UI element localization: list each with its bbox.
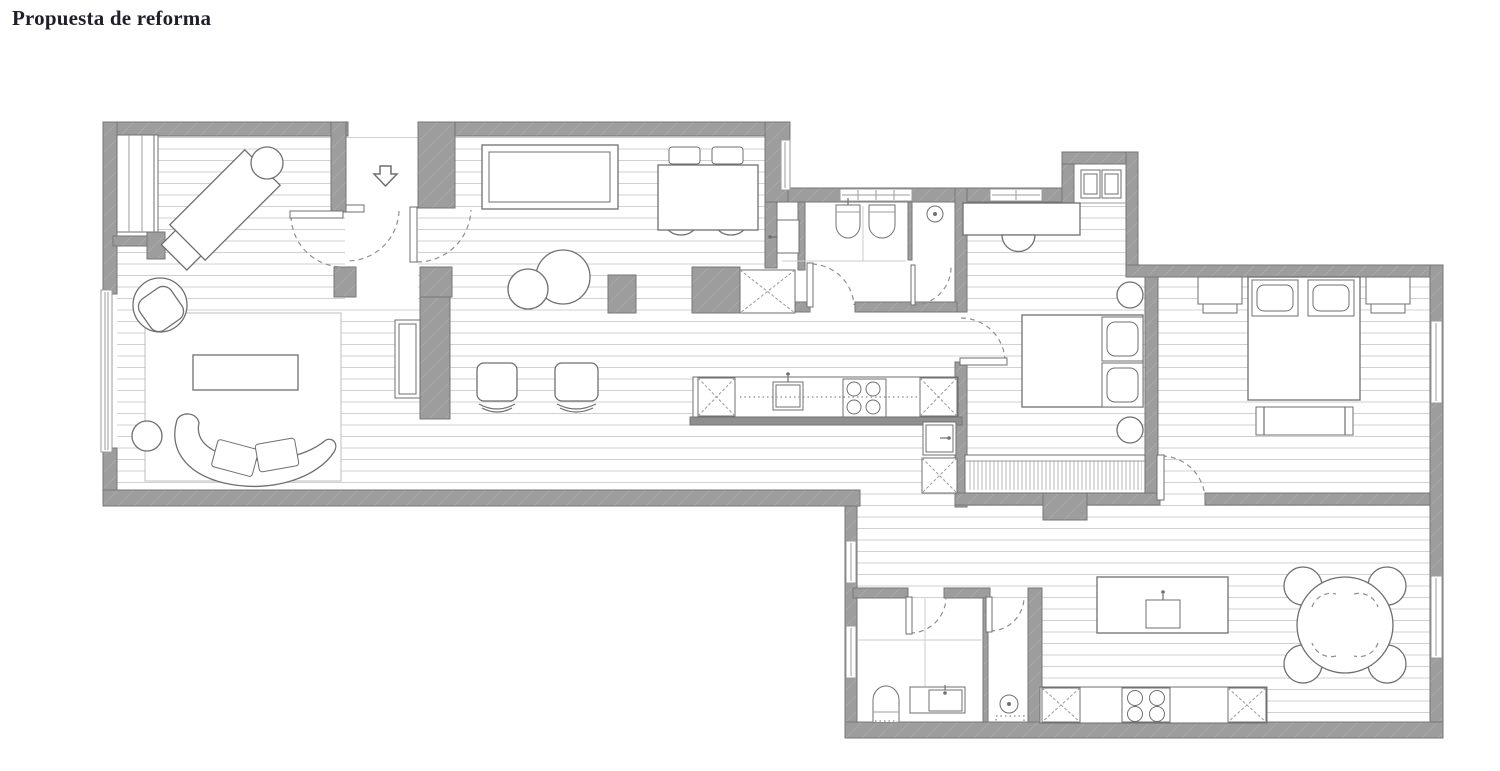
- bidet: [869, 205, 895, 238]
- tv-unit: [395, 320, 420, 398]
- door-leaf: [346, 205, 364, 212]
- washbasin: [910, 685, 965, 713]
- shower-head: [927, 206, 943, 222]
- window-step: [781, 140, 790, 190]
- round-table: [1297, 577, 1393, 673]
- window-living-left: [101, 290, 112, 452]
- double-bed: [1248, 277, 1360, 400]
- coffee-table: [193, 355, 298, 390]
- door-leaf: [410, 207, 417, 262]
- bedside-table: [1117, 282, 1143, 308]
- round-table-set: [1284, 567, 1406, 683]
- study-wardrobe: [117, 135, 158, 232]
- floor-plan: [0, 0, 1500, 771]
- sideboard: [482, 145, 618, 209]
- desk: [963, 203, 1080, 235]
- floor-plan-page: Propuesta de reforma: [0, 0, 1500, 771]
- door-leaf: [1157, 455, 1164, 500]
- window-wing-left-1: [846, 541, 856, 583]
- nightstand: [1198, 277, 1242, 313]
- shaft-x: [740, 270, 795, 313]
- kitchen: [693, 372, 958, 417]
- window-bedroom-right: [1431, 321, 1442, 403]
- skylight-niche: [1074, 170, 1126, 203]
- pillow: [1107, 322, 1138, 356]
- shower-drain: [1000, 695, 1018, 713]
- hob: [1122, 688, 1170, 722]
- door-leaf: [290, 211, 343, 218]
- door-leaf: [906, 597, 912, 634]
- double-bed: [1022, 315, 1143, 407]
- door-leaf: [986, 597, 992, 632]
- bed-bench: [1256, 407, 1353, 435]
- dining-table: [658, 165, 758, 230]
- kitchen-island: [1097, 577, 1228, 633]
- door-leaf: [807, 263, 813, 307]
- door-leaf: [960, 358, 1007, 365]
- tall-unit-x: [1042, 688, 1080, 722]
- bottom-counter: [1040, 687, 1267, 723]
- dining-chair: [712, 147, 743, 164]
- hob: [843, 379, 886, 417]
- window-bath-top-1: [840, 189, 912, 201]
- window-wing-left-2: [846, 626, 856, 678]
- pillow: [1107, 368, 1138, 402]
- nightstand: [1366, 277, 1410, 313]
- dining-chair: [669, 147, 700, 164]
- tall-unit-x: [1228, 688, 1266, 722]
- shaft-x: [922, 458, 957, 493]
- pillow: [1257, 285, 1293, 311]
- window-top-2: [990, 189, 1042, 201]
- fireplace-block: [608, 275, 636, 313]
- window-dining-right: [1431, 576, 1442, 658]
- washing-machine: [923, 422, 956, 455]
- study-chair: [251, 147, 283, 179]
- bedside-table: [1117, 417, 1143, 443]
- side-table: [132, 421, 162, 451]
- wardrobe: [965, 455, 1145, 493]
- tall-unit-x: [920, 378, 957, 416]
- pillow: [1313, 285, 1349, 311]
- door-leaf: [911, 265, 915, 305]
- tall-unit-x: [698, 378, 735, 416]
